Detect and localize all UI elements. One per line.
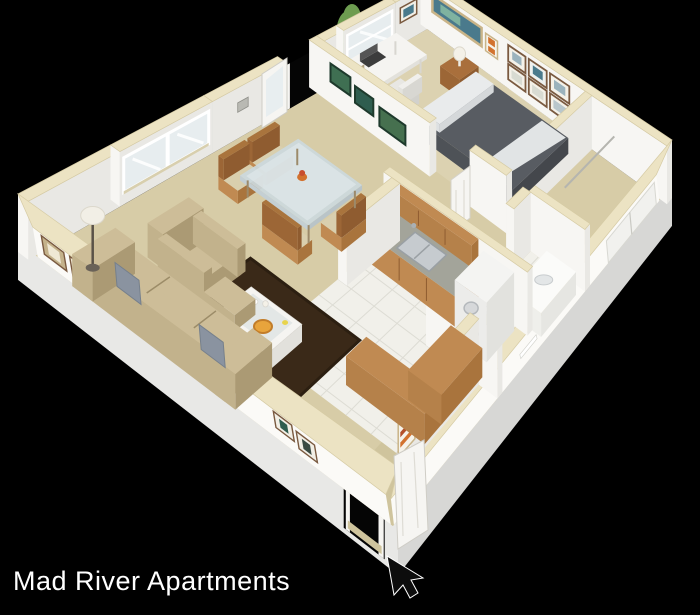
pizza (254, 320, 272, 333)
faucet (411, 223, 416, 228)
floor-lamp (81, 207, 105, 225)
apartment-3d-floorplan (0, 0, 700, 615)
front-door-leaf (394, 440, 428, 549)
floor-plan-image: Mad River Apartments (0, 0, 700, 615)
table-lamp (454, 47, 466, 61)
page-title: Mad River Apartments (13, 566, 290, 597)
